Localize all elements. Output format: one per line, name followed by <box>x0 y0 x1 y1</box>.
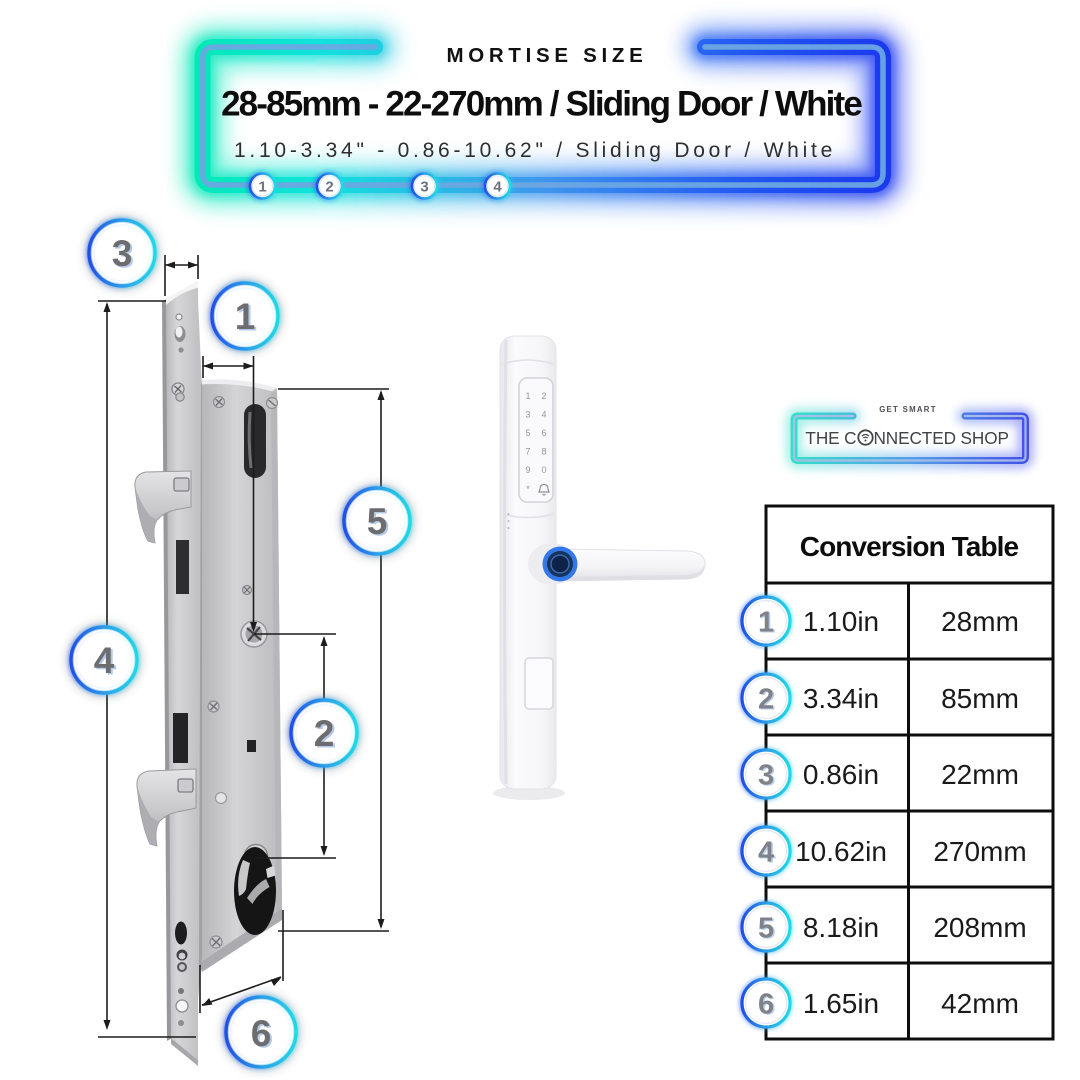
svg-text:2: 2 <box>314 713 335 754</box>
svg-text:28-85mm - 22-270mm / Sliding D: 28-85mm - 22-270mm / Sliding Door / Whit… <box>221 85 862 124</box>
svg-text:Conversion Table: Conversion Table <box>800 531 1019 562</box>
svg-text:1: 1 <box>235 296 256 337</box>
svg-text:42mm: 42mm <box>941 988 1019 1019</box>
svg-text:1: 1 <box>258 179 266 196</box>
svg-text:3: 3 <box>525 410 530 420</box>
svg-text:NNECTED SHOP: NNECTED SHOP <box>874 428 1009 448</box>
svg-text:4: 4 <box>758 837 774 869</box>
svg-text:28mm: 28mm <box>941 606 1019 637</box>
svg-text:270mm: 270mm <box>933 836 1026 867</box>
svg-text:2: 2 <box>325 179 333 196</box>
svg-text:3: 3 <box>112 233 133 274</box>
svg-text:1.10in: 1.10in <box>803 606 879 637</box>
svg-text:7: 7 <box>525 447 530 457</box>
svg-text:1.10-3.34" - 0.86-10.62" / Sli: 1.10-3.34" - 0.86-10.62" / Sliding Door … <box>234 139 836 162</box>
svg-text:4: 4 <box>94 640 115 681</box>
svg-text:9: 9 <box>525 465 530 475</box>
svg-text:1: 1 <box>525 391 530 401</box>
svg-text:6: 6 <box>541 428 546 438</box>
svg-text:3: 3 <box>758 760 774 792</box>
svg-text:85mm: 85mm <box>941 683 1019 714</box>
svg-text:6: 6 <box>758 989 774 1021</box>
svg-text:8.18in: 8.18in <box>803 912 879 943</box>
svg-text:GET SMART: GET SMART <box>879 405 937 414</box>
svg-text:3.34in: 3.34in <box>803 683 879 714</box>
svg-text:4: 4 <box>541 410 546 420</box>
svg-text:0: 0 <box>541 465 546 475</box>
svg-text:4: 4 <box>493 179 502 196</box>
svg-text:208mm: 208mm <box>933 912 1026 943</box>
svg-text:10.62in: 10.62in <box>795 836 887 867</box>
svg-text:*: * <box>526 484 530 494</box>
svg-text:MORTISE SIZE: MORTISE SIZE <box>446 44 647 67</box>
svg-text:5: 5 <box>758 913 774 945</box>
svg-text:5: 5 <box>525 428 530 438</box>
svg-text:6: 6 <box>251 1013 272 1054</box>
svg-text:2: 2 <box>541 391 546 401</box>
svg-text:THE C: THE C <box>805 428 856 448</box>
svg-text:2: 2 <box>758 684 774 716</box>
svg-text:5: 5 <box>367 501 388 542</box>
svg-text:0.86in: 0.86in <box>803 759 879 790</box>
svg-text:3: 3 <box>420 179 428 196</box>
svg-text:8: 8 <box>541 447 546 457</box>
svg-text:1: 1 <box>758 607 774 639</box>
svg-text:1.65in: 1.65in <box>803 988 879 1019</box>
svg-text:22mm: 22mm <box>941 759 1019 790</box>
